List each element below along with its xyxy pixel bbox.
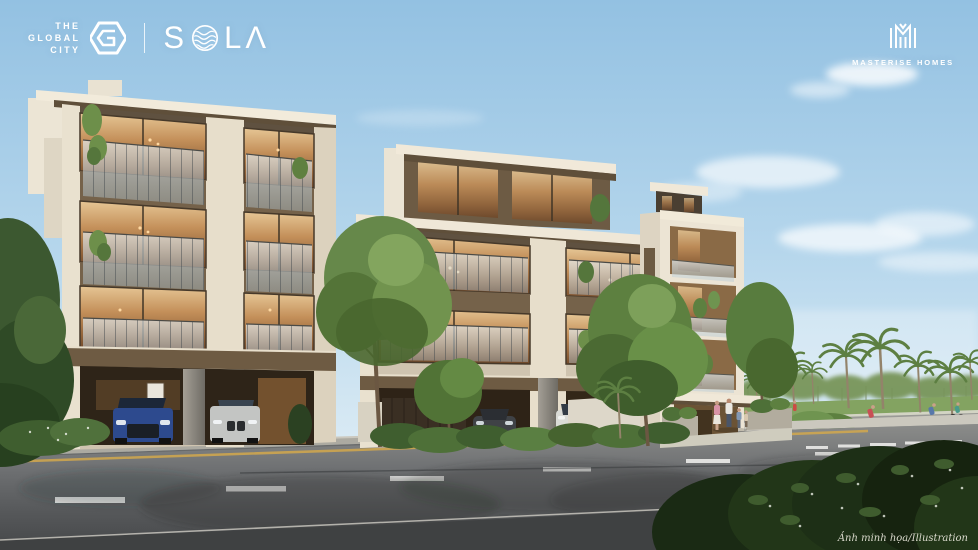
masterise-monogram-icon	[888, 22, 918, 48]
masterise-logo: MASTERISE HOMES	[852, 22, 954, 67]
sola-letter-l: L	[224, 20, 245, 57]
sola-logo: S L Λ	[163, 20, 270, 56]
header-brand-lockup: THE GLOBAL CITY S L Λ	[28, 20, 270, 56]
building-left	[28, 80, 336, 450]
global-city-line-1: THE	[28, 20, 80, 32]
glass-balustrades-left	[83, 140, 312, 369]
sola-letter-a: Λ	[245, 20, 270, 57]
masterise-wordmark: MASTERISE HOMES	[852, 58, 954, 67]
car-suv-silver	[210, 400, 260, 443]
global-city-wordmark: THE GLOBAL CITY	[28, 20, 80, 56]
brand-divider	[144, 23, 145, 53]
global-city-line-2: GLOBAL	[28, 32, 80, 44]
global-city-line-3: CITY	[28, 44, 80, 56]
global-city-logo: THE GLOBAL CITY	[28, 20, 126, 56]
car-sedan-blue	[113, 398, 173, 444]
rendering-scene: THE GLOBAL CITY S L Λ	[0, 0, 978, 550]
global-city-hexagon-icon	[90, 20, 126, 56]
illustration-disclaimer: Ảnh minh họa/Illustration	[838, 533, 968, 544]
scene-illustration	[0, 0, 978, 550]
sola-wave-o-icon	[191, 24, 219, 52]
sola-letter-s: S	[163, 20, 188, 57]
